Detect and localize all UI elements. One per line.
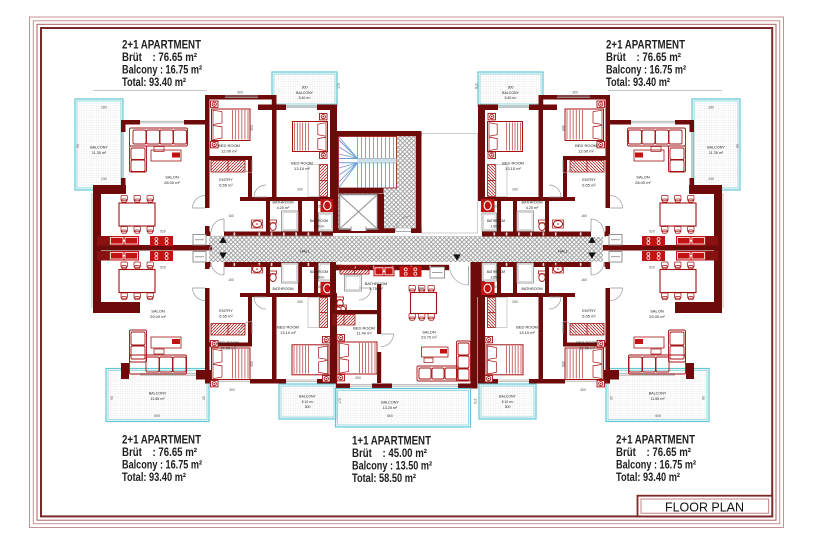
svg-text:4.25 m²: 4.25 m²	[277, 292, 290, 296]
svg-text:280: 280	[101, 106, 107, 110]
svg-text:520: 520	[160, 266, 166, 270]
svg-text:860: 860	[387, 414, 393, 418]
svg-text:230: 230	[708, 177, 714, 181]
svg-text:150: 150	[317, 205, 323, 209]
svg-text:400: 400	[561, 125, 565, 131]
svg-text:12.00 m²: 12.00 m²	[578, 148, 594, 153]
svg-text:6.55 m²: 6.55 m²	[219, 182, 233, 187]
svg-text:BATHROOM: BATHROOM	[272, 201, 293, 205]
svg-text:BED ROOM: BED ROOM	[576, 340, 598, 345]
svg-text:300: 300	[572, 91, 578, 95]
svg-text:11.65 m²: 11.65 m²	[150, 397, 165, 401]
svg-text:160: 160	[228, 214, 234, 218]
svg-text:90: 90	[701, 396, 705, 400]
svg-text:BED ROOM: BED ROOM	[575, 143, 597, 148]
svg-text:29.00 m²: 29.00 m²	[649, 314, 665, 319]
svg-text:ENTRY: ENTRY	[219, 177, 233, 182]
svg-text:BATHROOM: BATHROOM	[310, 219, 329, 223]
svg-text:150: 150	[492, 205, 498, 209]
svg-text:90: 90	[76, 144, 80, 148]
svg-text:BED ROOM: BED ROOM	[218, 143, 240, 148]
svg-text:1.90 m²: 1.90 m²	[491, 224, 502, 228]
svg-text:11.35 m²: 11.35 m²	[709, 151, 724, 155]
svg-text:BED ROOM: BED ROOM	[277, 325, 299, 330]
svg-text:BATHROOM: BATHROOM	[487, 270, 506, 274]
svg-text:160: 160	[581, 214, 587, 218]
svg-text:6.55 m²: 6.55 m²	[582, 182, 596, 187]
svg-text:SALON: SALON	[151, 309, 165, 314]
svg-text:20: 20	[202, 396, 206, 400]
svg-text:300: 300	[580, 388, 586, 392]
svg-text:480: 480	[418, 287, 424, 291]
svg-text:300: 300	[505, 405, 511, 409]
svg-text:400: 400	[250, 125, 254, 131]
svg-text:3.65 m²: 3.65 m²	[491, 275, 502, 279]
svg-text:170: 170	[338, 398, 342, 404]
svg-text:520: 520	[649, 266, 655, 270]
svg-text:13.10 m²: 13.10 m²	[294, 166, 310, 171]
svg-text:150: 150	[492, 285, 498, 289]
svg-text:4.25 m²: 4.25 m²	[526, 206, 539, 210]
svg-text:HALL: HALL	[558, 248, 569, 253]
svg-text:11.40 m²: 11.40 m²	[356, 331, 372, 336]
svg-text:90: 90	[735, 144, 739, 148]
svg-text:260: 260	[512, 300, 518, 304]
svg-text:BATHROOM: BATHROOM	[521, 287, 542, 291]
svg-text:13.20 m²: 13.20 m²	[383, 406, 398, 410]
svg-text:520: 520	[160, 230, 166, 234]
svg-text:Total: 93.40 m²: Total: 93.40 m²	[122, 75, 186, 89]
svg-text:300: 300	[237, 91, 243, 95]
svg-text:3.65 m²: 3.65 m²	[314, 275, 325, 279]
svg-text:300: 300	[305, 405, 311, 409]
svg-text:BALCONY: BALCONY	[149, 392, 167, 396]
svg-text:300: 300	[508, 86, 514, 90]
svg-text:20: 20	[609, 396, 613, 400]
svg-text:HALL: HALL	[300, 248, 311, 253]
svg-text:505: 505	[655, 414, 661, 418]
svg-text:11.65 m²: 11.65 m²	[650, 397, 665, 401]
svg-text:5.40 m²: 5.40 m²	[505, 96, 518, 100]
svg-text:BALCONY: BALCONY	[381, 401, 399, 405]
svg-text:13.10 m²: 13.10 m²	[280, 330, 296, 335]
svg-text:ENTRY: ENTRY	[219, 308, 233, 313]
svg-text:160: 160	[228, 278, 234, 282]
svg-text:BATHROOM: BATHROOM	[310, 270, 329, 274]
svg-text:29.00 m²: 29.00 m²	[150, 314, 166, 319]
svg-text:BALCONY: BALCONY	[90, 146, 108, 150]
svg-text:300: 300	[355, 376, 361, 380]
svg-text:12.00 m²: 12.00 m²	[579, 345, 595, 350]
svg-text:BALCONY: BALCONY	[707, 146, 725, 150]
svg-text:5.40 m²: 5.40 m²	[299, 96, 312, 100]
svg-text:400: 400	[561, 361, 565, 367]
svg-text:BED ROOM: BED ROOM	[291, 161, 313, 166]
svg-text:170: 170	[337, 83, 341, 89]
svg-text:BED ROOM: BED ROOM	[502, 161, 524, 166]
svg-text:300: 300	[229, 388, 235, 392]
svg-text:BATHROOM: BATHROOM	[487, 219, 506, 223]
svg-text:28.00 m²: 28.00 m²	[164, 180, 180, 185]
svg-text:520: 520	[649, 230, 655, 234]
svg-text:400: 400	[250, 361, 254, 367]
svg-text:FLOOR PLAN: FLOOR PLAN	[665, 499, 744, 514]
svg-text:28.00 m²: 28.00 m²	[635, 180, 651, 185]
svg-text:BATHROOM: BATHROOM	[521, 201, 542, 205]
svg-text:230: 230	[101, 177, 107, 181]
svg-text:BALCONY: BALCONY	[296, 91, 313, 95]
svg-text:SALON: SALON	[636, 175, 650, 180]
svg-text:BALCONY: BALCONY	[502, 91, 519, 95]
svg-text:BED ROOM: BED ROOM	[217, 340, 239, 345]
svg-text:90: 90	[110, 396, 114, 400]
svg-text:SALON: SALON	[650, 309, 664, 314]
svg-text:BALCONY: BALCONY	[499, 395, 516, 399]
svg-text:4.25 m²: 4.25 m²	[526, 292, 539, 296]
svg-text:13.10 m²: 13.10 m²	[505, 166, 521, 171]
svg-text:260: 260	[297, 188, 303, 192]
svg-text:12.00 m²: 12.00 m²	[220, 345, 236, 350]
svg-text:Total: 93.40 m²: Total: 93.40 m²	[616, 470, 680, 484]
svg-text:BATHROOM: BATHROOM	[272, 287, 293, 291]
svg-text:SALON: SALON	[165, 175, 179, 180]
svg-text:Total: 58.50 m²: Total: 58.50 m²	[352, 471, 416, 485]
svg-text:1.90 m²: 1.90 m²	[314, 224, 325, 228]
svg-text:150: 150	[317, 285, 323, 289]
svg-text:Total: 93.40 m²: Total: 93.40 m²	[122, 470, 186, 484]
svg-text:12.00 m²: 12.00 m²	[221, 148, 237, 153]
svg-text:170: 170	[473, 398, 477, 404]
svg-text:5.10 m²: 5.10 m²	[502, 400, 515, 404]
svg-text:BED ROOM: BED ROOM	[516, 325, 538, 330]
svg-text:300: 300	[302, 86, 308, 90]
svg-text:505: 505	[154, 414, 160, 418]
svg-text:ENTRY: ENTRY	[582, 308, 596, 313]
svg-text:5.10 m²: 5.10 m²	[302, 400, 315, 404]
svg-text:160: 160	[581, 278, 587, 282]
svg-text:280: 280	[708, 106, 714, 110]
svg-text:4.25 m²: 4.25 m²	[277, 206, 290, 210]
svg-text:Total: 93.40 m²: Total: 93.40 m²	[606, 75, 670, 89]
svg-text:23.70 m²: 23.70 m²	[421, 335, 437, 340]
svg-text:13.10 m²: 13.10 m²	[519, 330, 535, 335]
svg-text:260: 260	[512, 188, 518, 192]
svg-text:11.35 m²: 11.35 m²	[92, 151, 107, 155]
svg-text:260: 260	[297, 300, 303, 304]
svg-text:BALCONY: BALCONY	[649, 392, 667, 396]
svg-text:6.55 m²: 6.55 m²	[219, 313, 233, 318]
svg-text:BALCONY: BALCONY	[299, 395, 316, 399]
svg-text:170: 170	[474, 83, 478, 89]
svg-text:ENTRY: ENTRY	[582, 177, 596, 182]
svg-text:3.75 m²: 3.75 m²	[369, 286, 383, 291]
svg-text:6.55 m²: 6.55 m²	[582, 313, 596, 318]
